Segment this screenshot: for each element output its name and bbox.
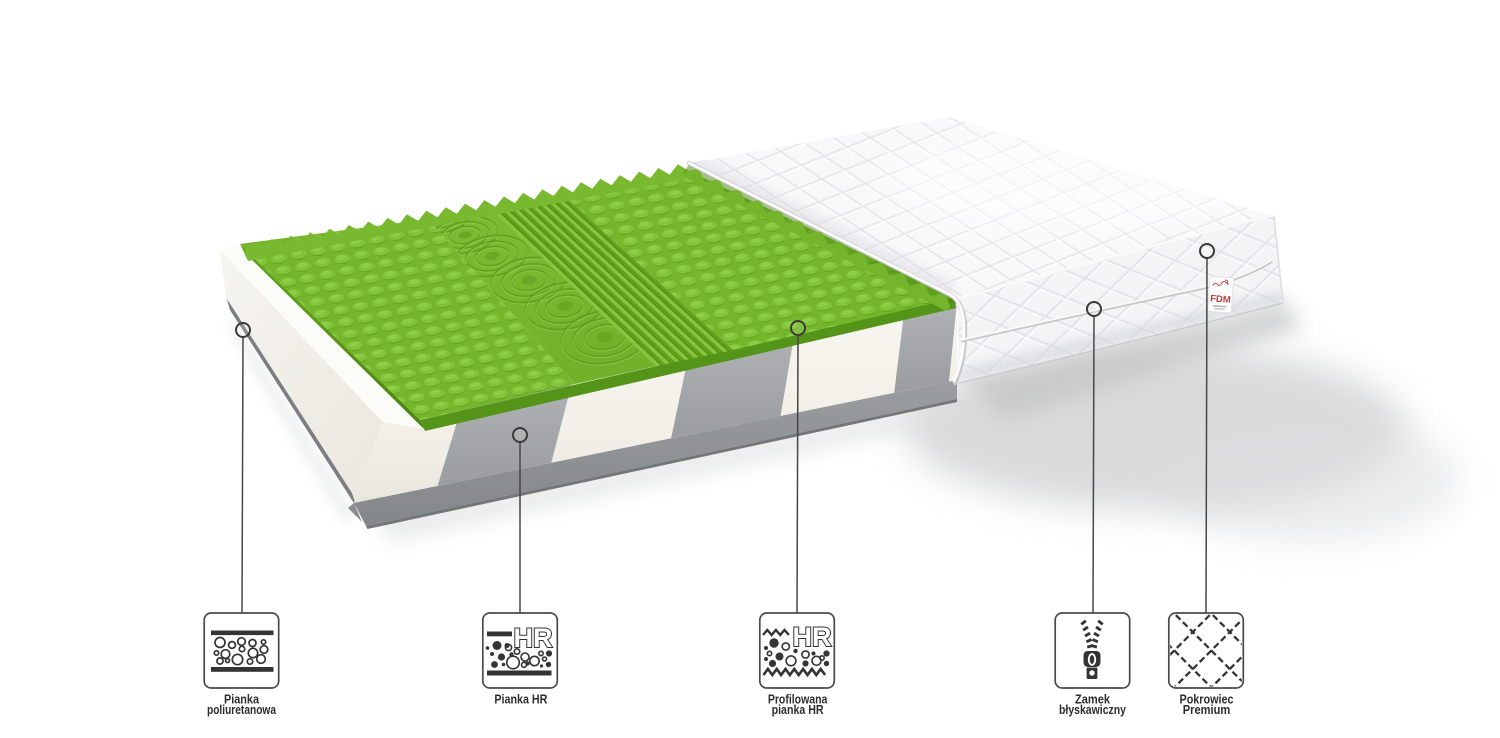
svg-text:błyskawiczny: błyskawiczny [1059, 703, 1126, 717]
svg-text:poliuretanowa: poliuretanowa [207, 703, 277, 717]
svg-text:pianka HR: pianka HR [772, 703, 824, 717]
svg-text:Pianka HR: Pianka HR [494, 693, 547, 707]
svg-text:Premium: Premium [1183, 703, 1231, 717]
svg-text:FDM: FDM [1210, 293, 1231, 305]
svg-text:HR: HR [514, 623, 553, 653]
svg-text:HR: HR [793, 622, 832, 652]
